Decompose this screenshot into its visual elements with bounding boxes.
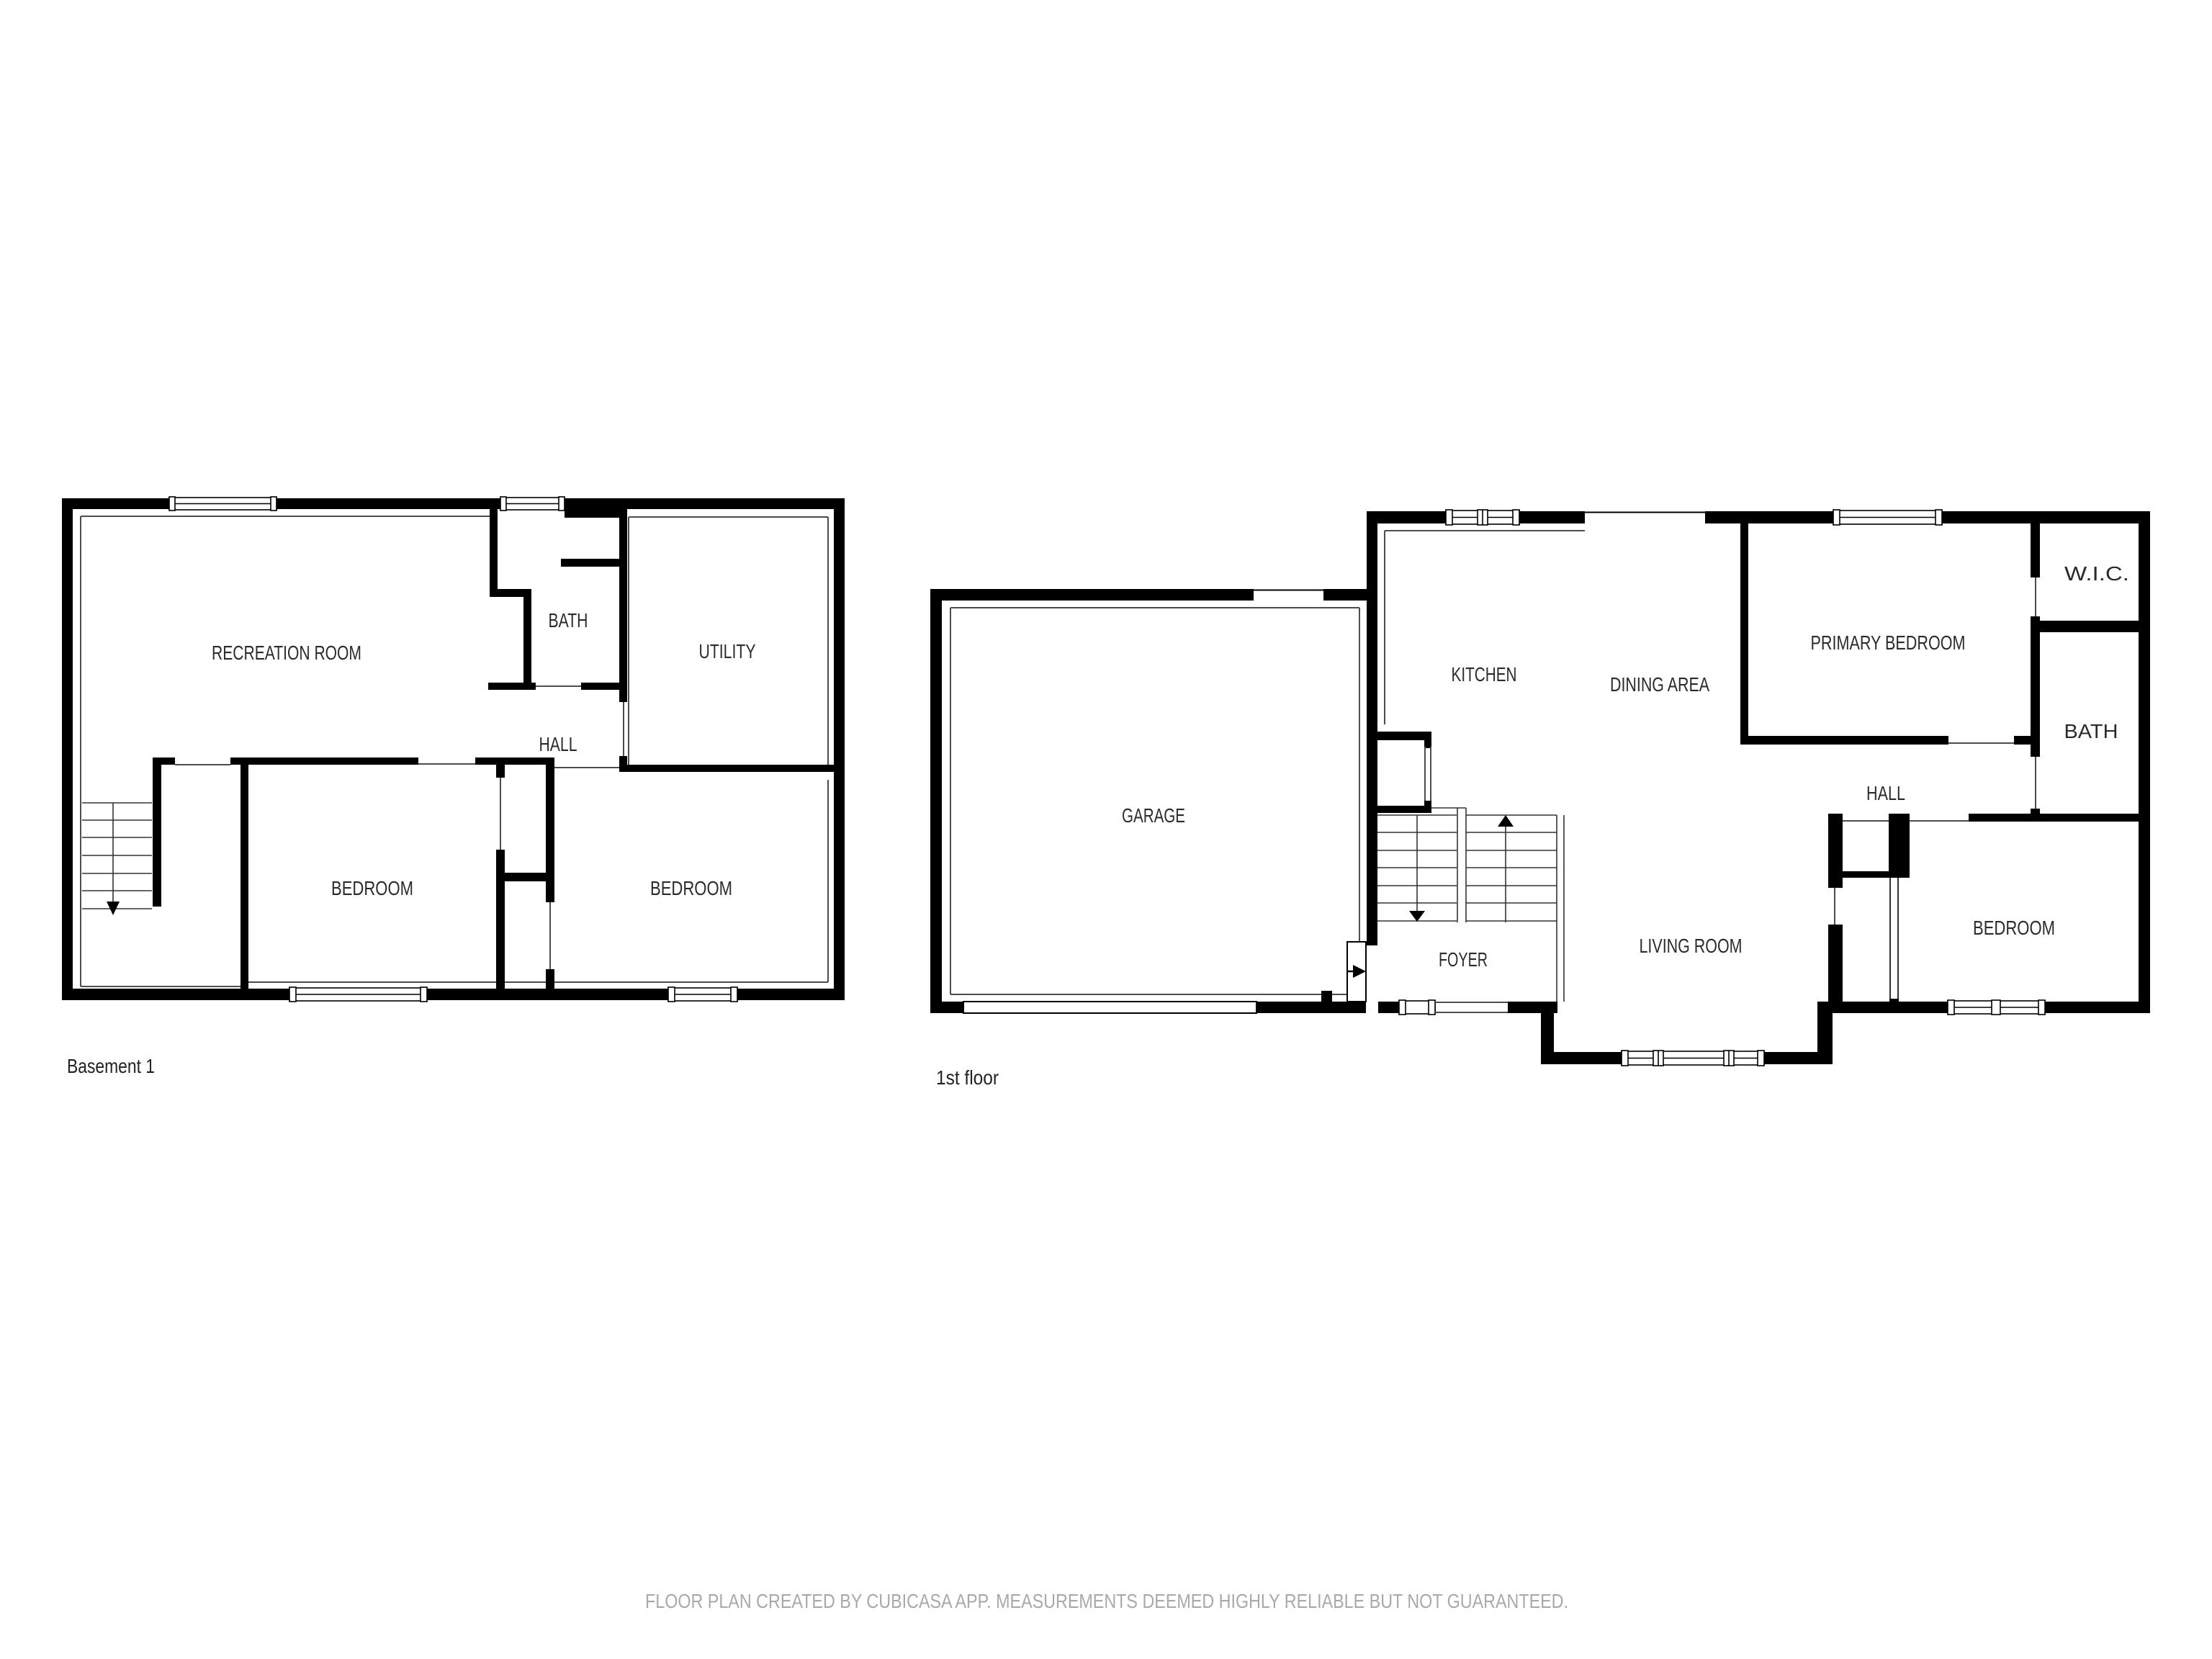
svg-text:KITCHEN: KITCHEN — [1452, 663, 1517, 685]
svg-text:Basement 1: Basement 1 — [67, 1055, 155, 1077]
svg-text:PRIMARY BEDROOM: PRIMARY BEDROOM — [1811, 631, 1966, 654]
svg-text:FLOOR PLAN CREATED BY CUBICASA: FLOOR PLAN CREATED BY CUBICASA APP. MEAS… — [645, 1590, 1568, 1612]
svg-text:1st floor: 1st floor — [936, 1066, 999, 1089]
svg-text:BEDROOM: BEDROOM — [1973, 917, 2055, 939]
svg-text:FOYER: FOYER — [1439, 948, 1488, 971]
svg-text:HALL: HALL — [539, 733, 577, 755]
svg-text:BATH: BATH — [549, 609, 588, 631]
svg-text:RECREATION ROOM: RECREATION ROOM — [212, 642, 361, 664]
svg-text:HALL: HALL — [1866, 782, 1905, 804]
svg-text:UTILITY: UTILITY — [699, 640, 756, 662]
svg-text:DINING AREA: DINING AREA — [1610, 673, 1709, 696]
svg-text:LIVING ROOM: LIVING ROOM — [1640, 935, 1743, 957]
svg-text:BEDROOM: BEDROOM — [331, 877, 413, 899]
svg-text:BATH: BATH — [2064, 720, 2118, 742]
svg-text:BEDROOM: BEDROOM — [650, 877, 732, 899]
svg-text:W.I.C.: W.I.C. — [2064, 562, 2129, 585]
svg-text:GARAGE: GARAGE — [1122, 804, 1185, 827]
